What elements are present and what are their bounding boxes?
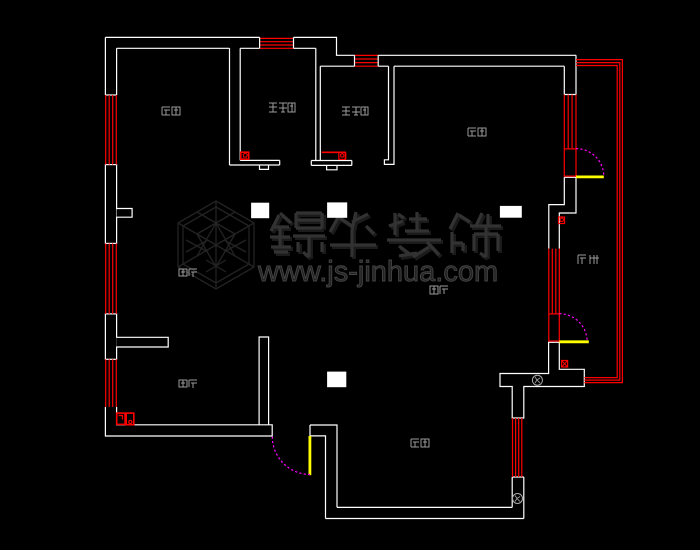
svg-text:www.js-jinhua.com: www.js-jinhua.com [257,256,498,288]
